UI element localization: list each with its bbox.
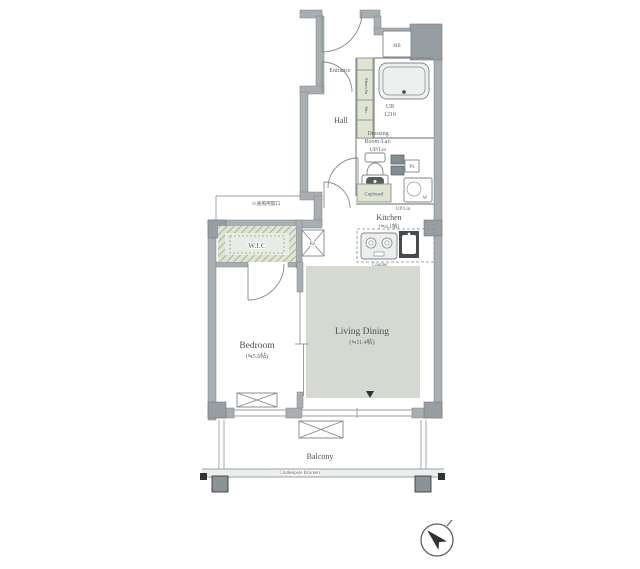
shoes-in-label: Shoes In xyxy=(364,78,369,95)
kitchen-label: Kitchen xyxy=(376,213,401,222)
ub-label: UB xyxy=(386,104,394,110)
balcony-label: Balcony xyxy=(307,452,334,461)
bedroom-label: Bedroom xyxy=(239,341,275,351)
duct-shaft xyxy=(391,155,404,164)
windows xyxy=(234,408,412,418)
cupboard: Cupboard xyxy=(357,184,391,202)
living-dining-label: Living Dining xyxy=(335,327,389,337)
wic-door-arc xyxy=(248,264,284,300)
entrance-label: Entrance xyxy=(329,68,351,74)
bedroom: Bedroom (≒5.6帖) xyxy=(237,292,308,407)
unit-bath: UB 1216 xyxy=(379,63,429,118)
washer-space: W xyxy=(404,178,432,202)
dressing-label-3: UP/Lin xyxy=(370,147,386,153)
wic-label: W.I.C xyxy=(248,241,266,250)
entrance-door-arc xyxy=(322,12,362,52)
ac-unit-space xyxy=(237,393,277,407)
refrigerator-space: Re. xyxy=(302,230,324,256)
ac-unit-space xyxy=(299,421,343,438)
post-base xyxy=(415,476,431,492)
vent-note-label: ※通風用開口 xyxy=(252,200,281,207)
washer-label: W xyxy=(423,196,428,201)
ps-label: PS xyxy=(409,165,415,170)
clothespole-label: Clothespole Brackets xyxy=(280,471,321,476)
floorplan-drawing: ※通風用開口 Entrance Hall Shoes In Sto. UB 12… xyxy=(0,0,640,569)
refrigerator-label: Re. xyxy=(310,242,317,247)
dressing-room: Dressing Room·Lav. UP/Lin PS W xyxy=(357,131,432,202)
floorplan-canvas: ※通風用開口 Entrance Hall Shoes In Sto. UB 12… xyxy=(0,0,640,569)
pipe-space: PS xyxy=(405,160,419,172)
dressing-label-2: Room·Lav. xyxy=(364,139,392,145)
post-base xyxy=(212,476,228,492)
duct-shaft xyxy=(391,166,404,175)
hall-label: Hall xyxy=(334,116,349,125)
balcony: Balcony Clothespole Brackets xyxy=(200,420,445,492)
balcony-rail xyxy=(202,469,444,477)
hall-door-arc xyxy=(322,62,352,92)
living-dining: Living Dining (≒11.4帖) xyxy=(306,266,420,398)
up-lin-label: UP/Lin xyxy=(396,207,411,212)
mb-label: MB xyxy=(393,44,400,49)
bedroom-size-label: (≒5.6帖) xyxy=(246,352,269,360)
stove-icon xyxy=(361,233,397,259)
living-dining-size-label: (≒11.4帖) xyxy=(349,338,374,346)
sink-icon xyxy=(399,231,419,258)
cupboard-label: Cupboard xyxy=(365,193,385,198)
ub-size-label: 1216 xyxy=(384,112,396,118)
storage-label: Sto. xyxy=(364,106,369,113)
shoes-closet: Shoes In Sto. xyxy=(357,58,373,138)
compass-icon xyxy=(421,520,453,556)
dressing-label-1: Dressing xyxy=(367,131,388,137)
exterior-notch: ※通風用開口 xyxy=(216,196,300,220)
meter-box: MB xyxy=(383,31,411,57)
